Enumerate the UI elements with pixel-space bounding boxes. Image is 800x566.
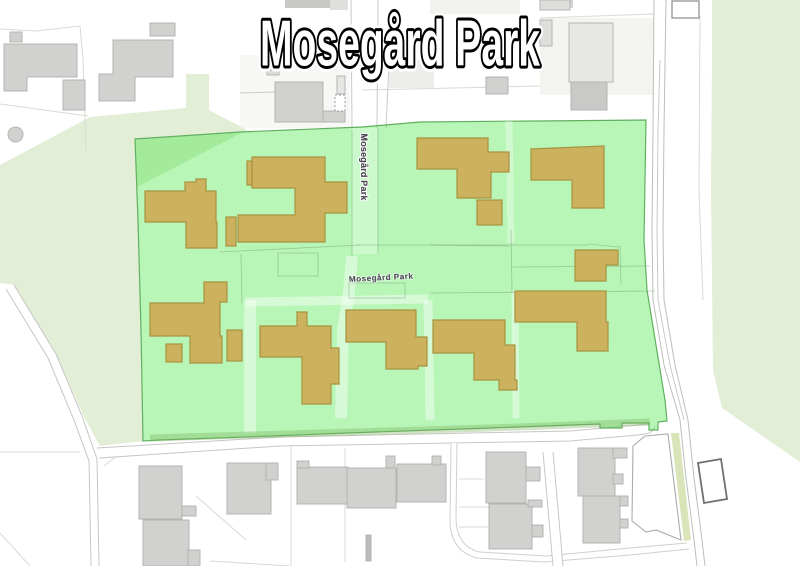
svg-text:Mosegård Park: Mosegård Park — [260, 8, 540, 80]
svg-text:Mosegård Park: Mosegård Park — [359, 134, 369, 202]
